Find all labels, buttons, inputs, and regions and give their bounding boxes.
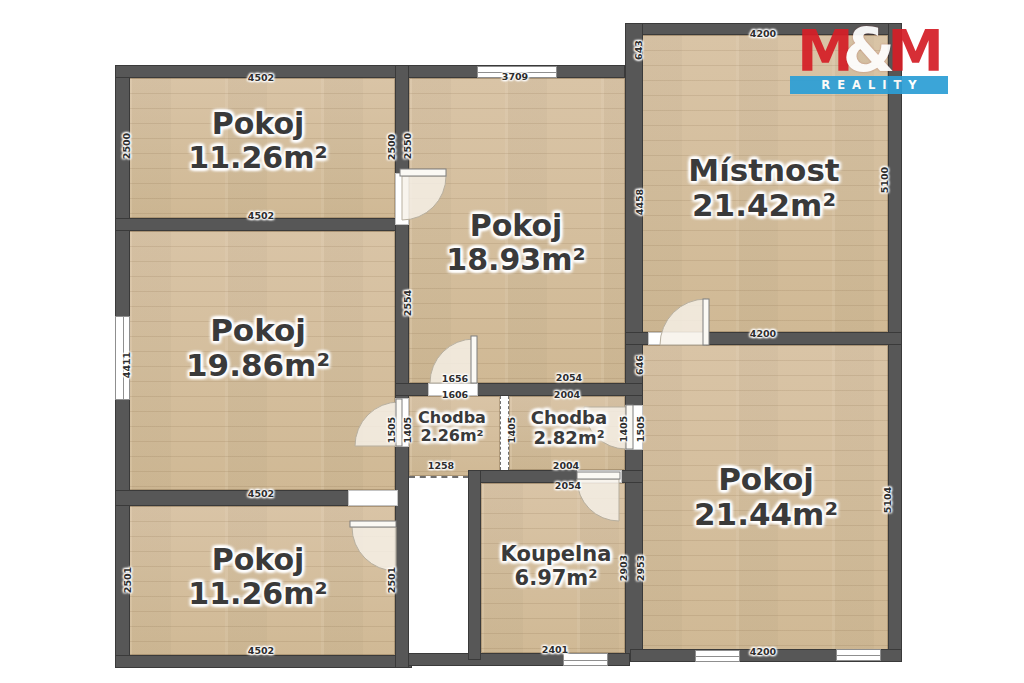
floor-plan: 4502370942004502165620541606200442001258…: [0, 0, 1024, 683]
room-name: Chodba: [531, 408, 607, 428]
room-name: Pokoj: [446, 209, 585, 243]
room-area: 2.26m²: [418, 427, 486, 445]
brand-logo-mm: M & M: [790, 26, 948, 75]
room-label-8: Koupelna6.97m²: [501, 543, 612, 590]
room-name: Pokoj: [694, 462, 838, 497]
room-area: 21.42m²: [688, 188, 839, 223]
room-area: 19.86m²: [186, 348, 330, 383]
room-labels-layer: Pokoj11.26m²Pokoj18.93m²Místnost21.42m²P…: [0, 0, 1024, 683]
room-area: 11.26m²: [188, 577, 327, 611]
room-label-6: Pokoj21.44m²: [694, 462, 838, 531]
room-label-3: Pokoj19.86m²: [186, 313, 330, 382]
room-area: 18.93m²: [446, 243, 585, 277]
room-area: 11.26m²: [188, 141, 327, 175]
room-name: Koupelna: [501, 543, 612, 567]
room-area: 2.82m²: [531, 428, 607, 448]
brand-logo-letter-m2: M: [887, 28, 941, 75]
room-label-4: Chodba2.26m²: [418, 409, 486, 445]
room-name: Pokoj: [188, 107, 327, 141]
room-name: Chodba: [418, 409, 486, 427]
brand-logo: M & M REALITY: [790, 26, 948, 94]
room-label-7: Pokoj11.26m²: [188, 543, 327, 610]
room-area: 21.44m²: [694, 497, 838, 532]
room-label-5: Chodba2.82m²: [531, 408, 607, 448]
room-area: 6.97m²: [501, 567, 612, 591]
room-name: Pokoj: [188, 543, 327, 577]
room-label-2: Místnost21.42m²: [688, 153, 839, 222]
room-label-0: Pokoj11.26m²: [188, 107, 327, 174]
room-name: Místnost: [688, 153, 839, 188]
brand-logo-ampersand: &: [843, 26, 895, 75]
room-name: Pokoj: [186, 313, 330, 348]
room-label-1: Pokoj18.93m²: [446, 209, 585, 276]
